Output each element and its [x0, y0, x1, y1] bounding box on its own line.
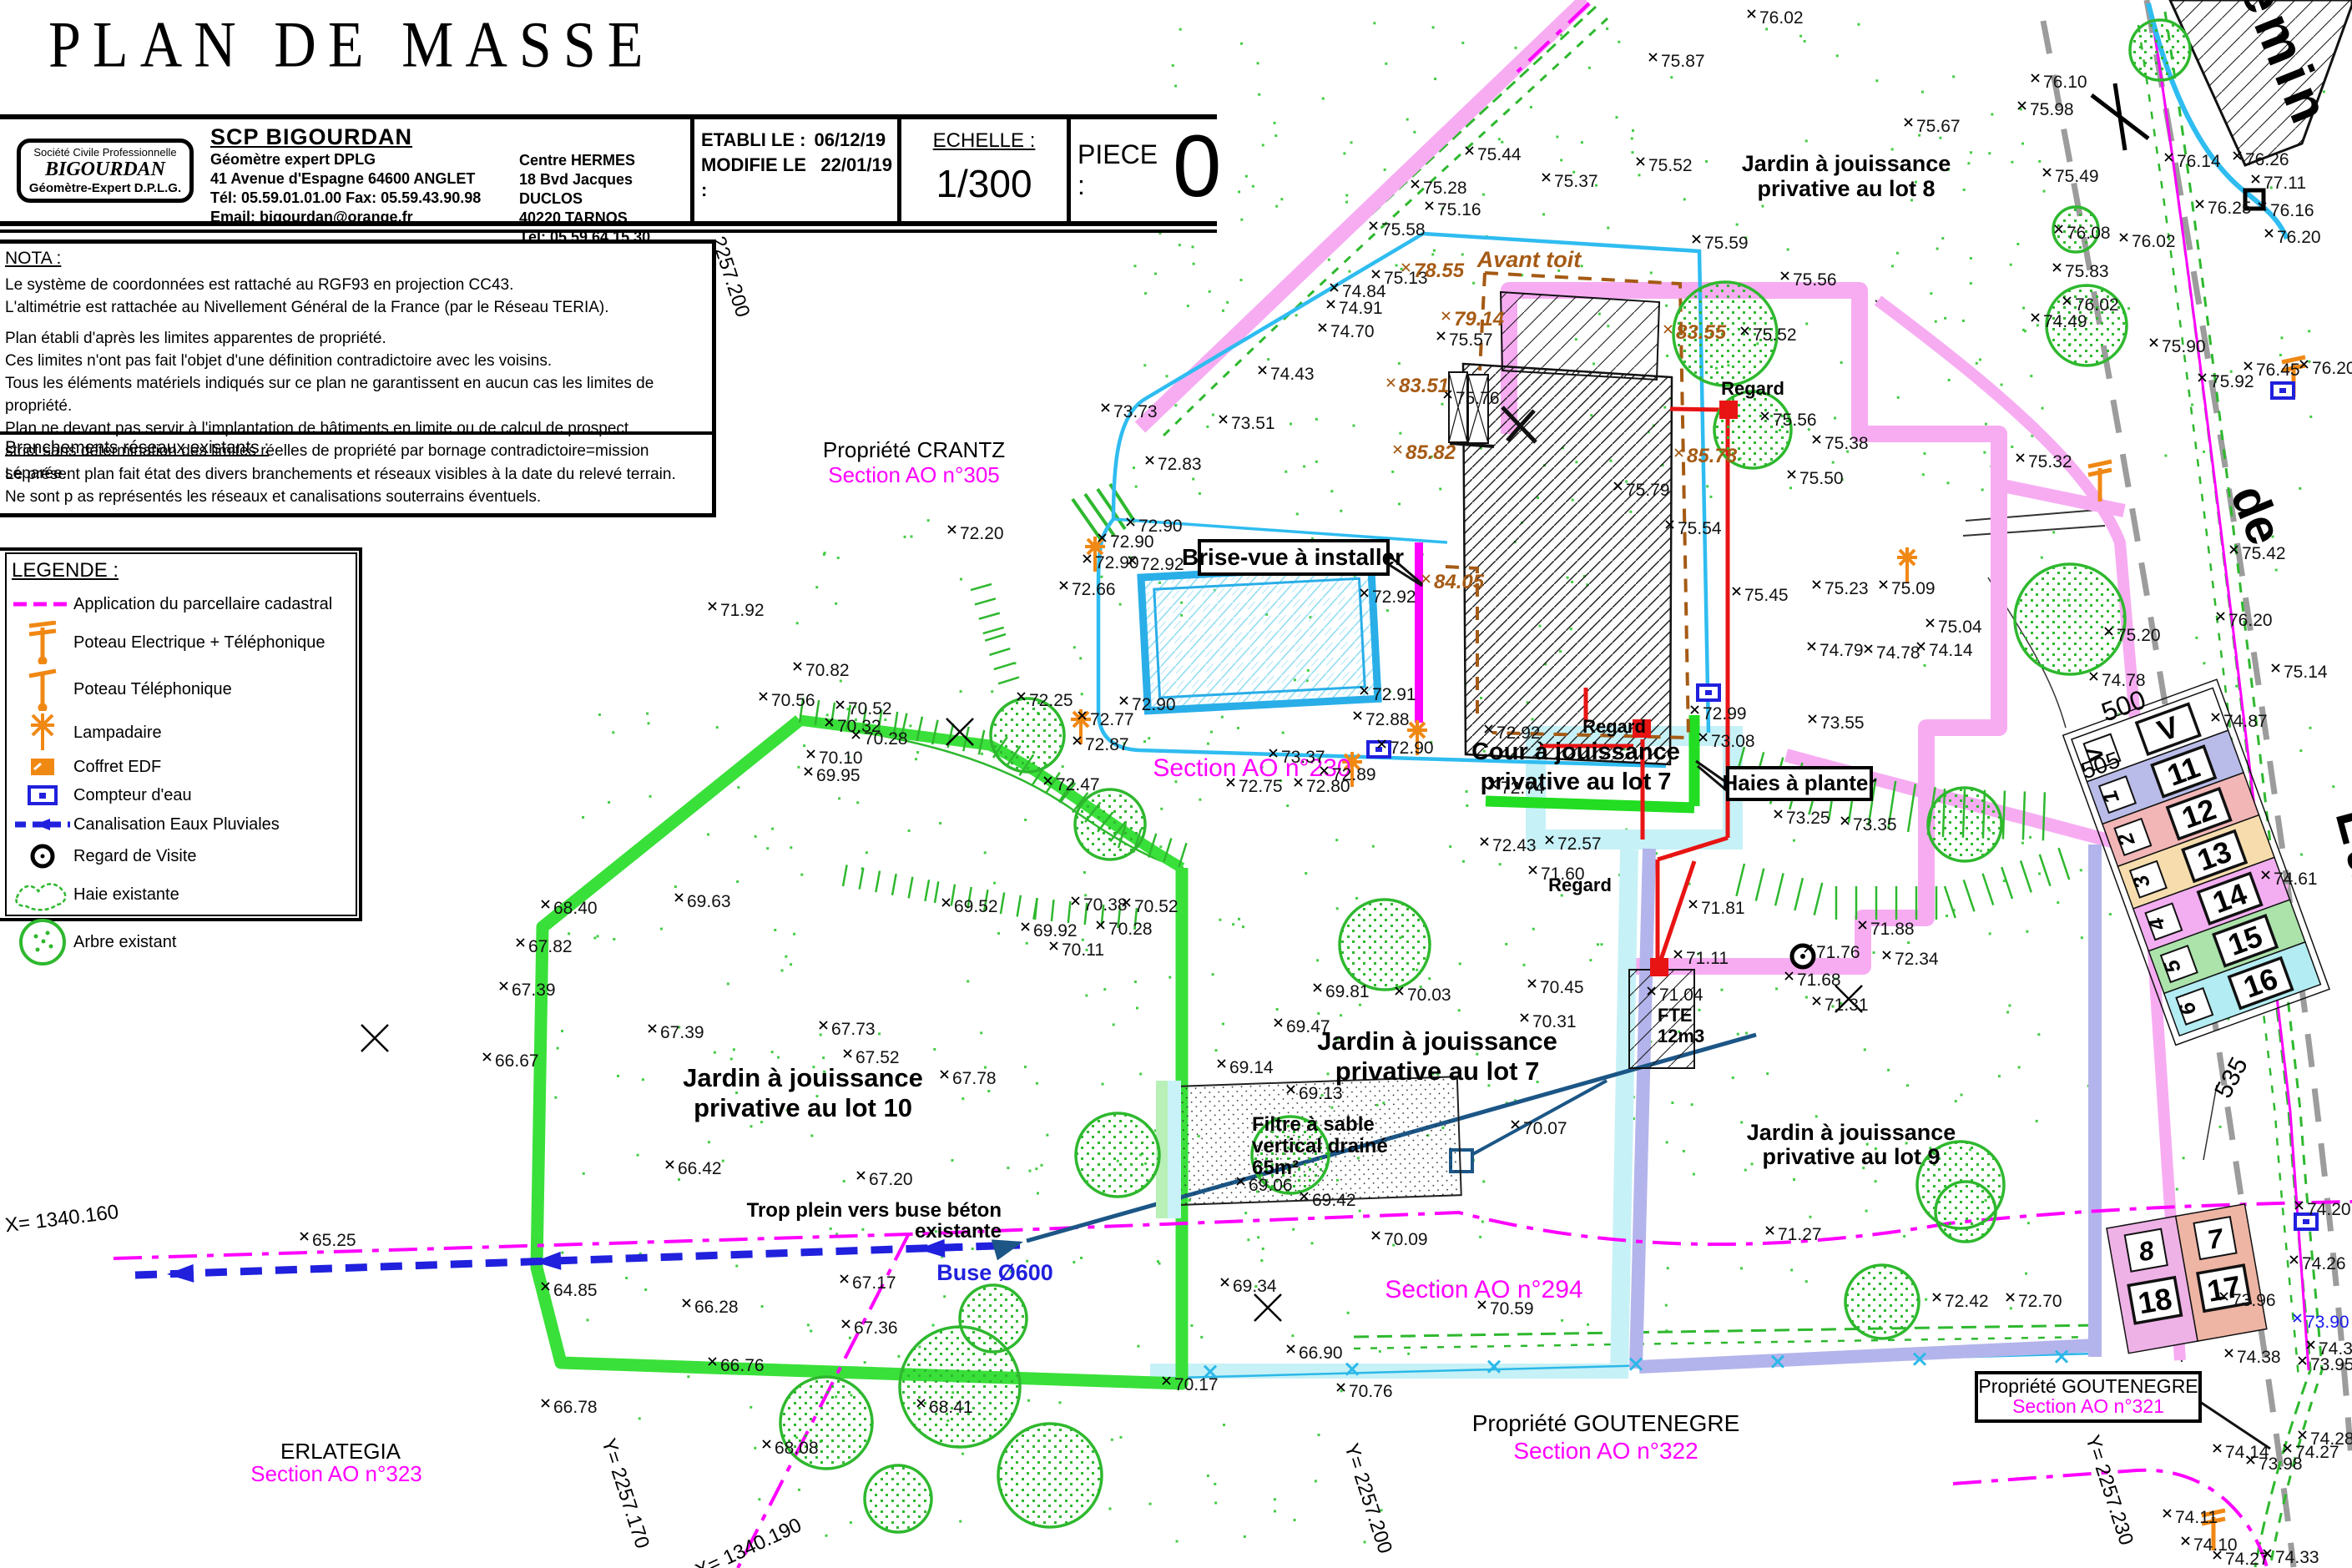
grass-dot: [1922, 473, 1925, 476]
legend-label: Canalisation Eaux Pluviales: [73, 815, 280, 834]
grass-dot: [1226, 301, 1229, 304]
grass-dot: [915, 758, 917, 760]
grass-dot: [1148, 737, 1150, 739]
cadastral-line-icon: [12, 600, 73, 608]
grass-dot: [908, 829, 911, 832]
spot-elevation: 72.43: [1481, 836, 1537, 855]
svg-text:70.07: 70.07: [1523, 1119, 1567, 1138]
spot-elevation: 75.52: [1637, 156, 1693, 175]
grass-dot: [1335, 839, 1338, 841]
grass-dot: [1080, 1257, 1083, 1259]
grass-dot: [1530, 106, 1532, 108]
grass-dot: [909, 724, 911, 727]
grass-dot: [1601, 943, 1603, 945]
grass-dot: [1168, 976, 1171, 979]
grass-dot: [1340, 1014, 1342, 1016]
grass-dot: [678, 1178, 680, 1181]
grass-dot: [1398, 362, 1401, 365]
svg-text:70.03: 70.03: [1407, 986, 1451, 1005]
grass-dot: [613, 938, 615, 940]
grass-dot: [1720, 989, 1723, 991]
svg-text:76.02: 76.02: [2132, 232, 2176, 251]
grass-dot: [781, 970, 784, 972]
grass-dot: [1295, 314, 1298, 316]
grass-dot: [1709, 496, 1712, 498]
legend-heading: LEGENDE :: [12, 559, 359, 582]
grass-dot: [1671, 1102, 1673, 1104]
grass-dot: [1274, 134, 1277, 137]
svg-text:74.27: 74.27: [2225, 1550, 2269, 1568]
svg-text:74.61: 74.61: [2274, 870, 2318, 889]
grass-dot: [1744, 1169, 1747, 1172]
svg-text:75.87: 75.87: [1661, 52, 1705, 71]
grass-dot: [1921, 91, 1924, 93]
grass-dot: [1449, 845, 1451, 848]
map-label: Filtre à sable: [1252, 1113, 1375, 1136]
grass-dot: [625, 1277, 628, 1279]
grass-dot: [2300, 854, 2303, 856]
svg-text:70.52: 70.52: [848, 699, 892, 718]
grass-dot: [790, 963, 792, 966]
poteau-elec-tel-icon: [12, 621, 73, 664]
grass-dot: [1799, 35, 1802, 38]
svg-text:71.76: 71.76: [1816, 943, 1860, 962]
grass-dot: [2109, 913, 2112, 915]
grass-dot: [1944, 317, 1946, 320]
stall-number: 18: [2136, 1281, 2175, 1320]
svg-text:69.95: 69.95: [816, 766, 861, 785]
grass-dot: [2006, 1011, 2009, 1013]
grass-dot: [1805, 322, 1808, 325]
grass-dot: [810, 1329, 812, 1332]
nota-box: NOTA : Le système de coordonnées est rat…: [0, 239, 716, 517]
grass-dot: [1244, 1212, 1247, 1214]
grass-dot: [582, 816, 584, 819]
grass-dot: [1073, 646, 1076, 648]
grass-dot: [1638, 174, 1640, 176]
piece-label: PIECE :: [1078, 139, 1158, 201]
svg-text:70.09: 70.09: [1384, 1230, 1428, 1249]
spot-elevation: 75.44: [1466, 145, 1522, 164]
svg-text:74.43: 74.43: [1270, 365, 1315, 384]
compteur-eau-icon: [12, 785, 73, 805]
grass-dot: [1137, 1345, 1139, 1348]
grass-dot: [1981, 488, 1984, 491]
svg-text:72.91: 72.91: [1372, 685, 1416, 704]
firm-name: SCP BIGOURDAN: [210, 124, 519, 150]
legend-label: Haie existante: [73, 885, 179, 905]
grass-dot: [561, 1252, 563, 1254]
grass-dot: [1135, 486, 1138, 488]
svg-text:75.28: 75.28: [1423, 179, 1467, 198]
grass-dot: [1740, 1267, 1743, 1269]
grass-dot: [807, 1323, 810, 1326]
compteur-eau-icon: [1698, 685, 1719, 700]
grass-dot: [1665, 305, 1668, 307]
nota-line: L'altimétrie est rattachée au Nivellemen…: [5, 296, 705, 319]
grass-dot: [1373, 22, 1375, 24]
grass-dot: [2299, 749, 2302, 752]
grass-dot: [961, 1097, 964, 1100]
spot-elevation: 66.28: [683, 1298, 739, 1317]
legend-label: Arbre existant: [73, 933, 176, 952]
firm-email: Email: bigourdan@orange.fr: [210, 208, 519, 227]
grass-dot: [1274, 122, 1276, 124]
grass-dot: [815, 586, 818, 588]
grass-dot: [727, 983, 729, 986]
grass-dot: [1317, 1012, 1320, 1015]
grass-dot: [1166, 375, 1168, 377]
firm-subtitle: Géomètre expert DPLG: [210, 150, 519, 169]
grass-dot: [810, 1135, 813, 1137]
grass-dot: [771, 828, 774, 830]
grass-dot: [1462, 860, 1465, 863]
grass-dot: [1499, 863, 1502, 865]
svg-text:73.51: 73.51: [1231, 414, 1275, 433]
svg-text:79.14: 79.14: [1454, 308, 1504, 330]
grass-dot: [1935, 320, 1937, 323]
svg-text:72.90: 72.90: [1095, 553, 1139, 572]
grass-dot: [1316, 959, 1319, 961]
grass-dot: [2029, 836, 2032, 839]
grass-dot: [766, 847, 769, 850]
spot-elevation: 69.52: [942, 897, 998, 916]
grass-dot: [1240, 219, 1243, 221]
piece-box: PIECE : 0: [1067, 119, 1217, 221]
grass-dot: [1970, 257, 1972, 260]
svg-text:69.92: 69.92: [1033, 921, 1078, 940]
grass-dot: [1433, 250, 1436, 252]
grass-dot: [793, 933, 795, 935]
svg-text:75.67: 75.67: [1916, 117, 1961, 136]
spot-elevation: 75.58: [1370, 220, 1426, 239]
grass-dot: [1103, 988, 1106, 991]
grass-dot: [1998, 1075, 2001, 1077]
grass-dot: [1396, 265, 1398, 267]
spot-elevation: 70.76: [1337, 1382, 1393, 1401]
grass-dot: [1607, 227, 1609, 229]
title-block: Société Civile Professionnelle BIGOURDAN…: [0, 114, 1217, 226]
grass-dot: [2011, 446, 2013, 448]
map-label: Y= 2257.170: [597, 1435, 654, 1550]
spot-elevation: 74.26: [2290, 1254, 2346, 1273]
svg-text:65.25: 65.25: [312, 1231, 356, 1250]
grass-dot: [1327, 1072, 1330, 1075]
grass-dot: [1085, 995, 1088, 997]
spot-elevation: 70.56: [760, 691, 815, 710]
office-line2: 18 Bvd Jacques DUCLOS: [519, 170, 690, 209]
grass-dot: [1028, 1170, 1031, 1172]
svg-text:70.17: 70.17: [1174, 1375, 1219, 1394]
legend-label: Lampadaire: [73, 723, 162, 743]
grass-dot: [1210, 731, 1213, 734]
map-label: Regard: [1721, 378, 1784, 399]
spot-elevation: 66.67: [483, 1051, 539, 1071]
grass-dot: [1962, 320, 1965, 322]
svg-text:73.90: 73.90: [2305, 1313, 2349, 1332]
grass-dot: [1650, 271, 1653, 274]
map-label: Section AO n°322: [1513, 1438, 1698, 1464]
grass-dot: [2041, 557, 2043, 559]
office-info: Centre HERMES 18 Bvd Jacques DUCLOS 4022…: [519, 119, 690, 221]
grass-dot: [1561, 1319, 1563, 1322]
grass-dot: [1428, 977, 1431, 980]
svg-text:71.92: 71.92: [720, 601, 765, 620]
grass-dot: [1963, 189, 1966, 191]
grass-dot: [1355, 897, 1358, 900]
svg-text:74.11: 74.11: [2175, 1508, 2218, 1527]
spot-elevation: 70.38: [1072, 895, 1128, 915]
svg-text:72.43: 72.43: [1492, 836, 1537, 855]
svg-text:72.90: 72.90: [1110, 532, 1154, 552]
svg-text:73.08: 73.08: [1711, 732, 1755, 751]
svg-text:83.51: 83.51: [1399, 375, 1449, 397]
grass-dot: [1199, 799, 1201, 801]
map-label: Section AO n°321: [2012, 1395, 2164, 1417]
grass-dot: [1257, 1236, 1259, 1238]
grass-dot: [612, 731, 614, 734]
grass-dot: [1631, 151, 1633, 154]
grass-dot: [1081, 693, 1083, 695]
tree: [2015, 564, 2125, 674]
spot-elevation: 67.39: [500, 981, 556, 1000]
svg-text:75.54: 75.54: [1678, 519, 1722, 538]
svg-text:75.50: 75.50: [1799, 469, 1844, 488]
firm-phones: Tél: 05.59.01.01.00 Fax: 05.59.43.90.98: [210, 189, 519, 208]
grass-dot: [1925, 1298, 1927, 1301]
svg-text:67.73: 67.73: [831, 1020, 876, 1039]
grass-dot: [1238, 918, 1240, 920]
grass-dot: [1294, 1519, 1296, 1521]
svg-text:75.14: 75.14: [2284, 663, 2328, 682]
legend-label: Poteau Téléphonique: [73, 680, 232, 699]
grass-dot: [933, 1048, 936, 1051]
grass-dot: [1239, 279, 1242, 281]
talus-comb: [971, 584, 1019, 683]
grass-dot: [1242, 925, 1244, 928]
grass-dot: [1347, 1312, 1350, 1314]
grass-dot: [1238, 190, 1240, 193]
grass-dot: [1693, 1173, 1695, 1176]
svg-text:70.76: 70.76: [1349, 1382, 1393, 1401]
grass-dot: [1111, 1439, 1113, 1441]
grass-dot: [1143, 364, 1146, 366]
spot-elevation: 75.50: [1788, 469, 1844, 488]
legend-label: Coffret EDF: [73, 758, 161, 777]
map-label: Propriété GOUTENEGRE: [1472, 1410, 1740, 1436]
svg-text:69.63: 69.63: [687, 892, 731, 911]
svg-text:66.90: 66.90: [1299, 1344, 1343, 1363]
grass-dot: [1385, 63, 1387, 65]
scale-label: ECHELLE :: [901, 129, 1067, 153]
grass-dot: [1352, 425, 1355, 427]
svg-text:76.45: 76.45: [2256, 360, 2300, 380]
grass-dot: [777, 1056, 780, 1059]
grass-dot: [1176, 1540, 1179, 1543]
svg-text:69.81: 69.81: [1325, 982, 1370, 1001]
legend-label: Compteur d'eau: [73, 786, 192, 805]
grass-dot: [1274, 1498, 1276, 1500]
grass-dot: [997, 932, 1000, 935]
compteur-eau-icon: [1368, 742, 1390, 757]
map-label: Jardin à jouissance: [1747, 1120, 1956, 1145]
svg-text:71.27: 71.27: [1778, 1225, 1822, 1244]
svg-text:75.09: 75.09: [1891, 579, 1936, 598]
grass-dot: [1282, 732, 1285, 734]
grass-dot: [1296, 512, 1299, 515]
grass-dot: [820, 1033, 822, 1036]
spot-elevation: 67.39: [649, 1023, 704, 1042]
svg-text:73.98: 73.98: [2259, 1455, 2303, 1474]
grass-dot: [1244, 1535, 1246, 1538]
spot-elevation: 76.25: [2196, 199, 2252, 218]
grass-dot: [1955, 1100, 1957, 1102]
swimming-pool: [1141, 566, 1378, 711]
grass-dot: [797, 766, 800, 769]
grass-dot: [1683, 198, 1686, 200]
nota-line: Ces limites n'ont pas fait l'objet d'une…: [5, 350, 705, 372]
spot-elevation: 75.38: [1813, 434, 1869, 453]
grass-dot: [1836, 54, 1839, 57]
nota-line: Plan établi d'après les limites apparent…: [5, 327, 705, 350]
grass-dot: [961, 1453, 964, 1455]
grass-dot: [1498, 138, 1501, 140]
grass-dot: [2052, 531, 2055, 533]
grass-dot: [1340, 1389, 1343, 1392]
svg-text:69.34: 69.34: [1233, 1277, 1277, 1296]
svg-text:76.08: 76.08: [2067, 224, 2111, 243]
grass-dot: [1315, 461, 1318, 463]
grass-dot: [2235, 685, 2238, 688]
grass-dot: [1459, 962, 1461, 965]
grass-dot: [617, 1075, 619, 1077]
svg-text:72.74: 72.74: [1501, 779, 1545, 798]
grass-dot: [1119, 1436, 1122, 1439]
spot-elevation: 69.95: [805, 766, 861, 785]
spot-elevation: 73.25: [1774, 809, 1830, 828]
parking-stalls: VV111212313414515616818717: [2063, 679, 2329, 1354]
map-label: Regard: [1582, 716, 1646, 737]
grass-dot: [674, 885, 677, 888]
grass-dot: [1190, 1324, 1193, 1327]
grass-dot: [927, 519, 930, 522]
grass-dot: [638, 1417, 641, 1419]
grass-dot: [1897, 396, 1900, 399]
spot-elevation: 71.92: [709, 601, 765, 620]
grass-dot: [1875, 79, 1878, 82]
grass-dot: [2016, 243, 2019, 245]
grass-dot: [1766, 1072, 1769, 1075]
talus-hatching: [800, 584, 2069, 930]
svg-text:72.57: 72.57: [1557, 834, 1602, 854]
spot-elevation: 75.49: [2043, 167, 2099, 186]
nota-line: Tous les éléments matériels indiqués sur…: [5, 372, 705, 417]
grass-dot: [1345, 194, 1348, 197]
grass-dot: [830, 1228, 832, 1230]
spot-elevation: 67.78: [941, 1069, 997, 1088]
regard-rouge: [1650, 958, 1668, 976]
legend-label: Poteau Electrique + Téléphonique: [73, 633, 326, 653]
grass-dot: [1199, 492, 1201, 495]
svg-text:75.56: 75.56: [1773, 411, 1817, 430]
regard-rouge: [1719, 401, 1738, 419]
grass-dot: [1698, 1009, 1701, 1011]
spot-elevation: 72.66: [1060, 580, 1116, 599]
svg-text:74.87: 74.87: [2223, 712, 2268, 731]
grass-dot: [1172, 64, 1174, 67]
grass-dot: [1939, 137, 1941, 139]
grass-dot: [1221, 716, 1224, 718]
svg-text:75.32: 75.32: [2028, 452, 2072, 471]
grass-dot: [1804, 40, 1806, 43]
svg-text:85.82: 85.82: [1406, 441, 1456, 464]
grass-dot: [1691, 1103, 1693, 1106]
svg-text:66.42: 66.42: [678, 1159, 722, 1178]
svg-text:70.38: 70.38: [1083, 895, 1128, 915]
grass-dot: [1285, 471, 1287, 473]
etabli-date: 06/12/19: [814, 128, 886, 153]
spot-elevation: 74.78: [1865, 643, 1920, 663]
grass-dot: [1961, 1093, 1963, 1096]
svg-text:69.52: 69.52: [954, 897, 998, 916]
grass-dot: [1240, 43, 1243, 45]
grass-dot: [1896, 252, 1899, 255]
svg-text:72.70: 72.70: [2018, 1292, 2062, 1311]
grass-dot: [960, 578, 962, 581]
grass-dot: [2042, 407, 2044, 410]
spot-elevation: 69.14: [1218, 1058, 1274, 1077]
map-label: Buse Ø600: [936, 1260, 1053, 1285]
svg-text:74.26: 74.26: [2302, 1254, 2346, 1273]
spot-elevation: 75.37: [1542, 172, 1598, 191]
svg-text:72.20: 72.20: [960, 524, 1004, 543]
spot-elevation: 69.34: [1221, 1277, 1277, 1296]
grass-dot: [1407, 1353, 1410, 1355]
map-label: X= 1340.190: [692, 1514, 805, 1568]
etabli-label: ETABLI LE :: [701, 128, 805, 153]
grass-dot: [1737, 1033, 1739, 1036]
spot-elevation: 75.54: [1666, 519, 1722, 538]
grass-dot: [1267, 358, 1269, 360]
modifie-date: 22/01/19: [820, 153, 892, 203]
svg-text:72.83: 72.83: [1158, 455, 1202, 474]
grass-dot: [2027, 1222, 2030, 1224]
svg-text:67.39: 67.39: [660, 1023, 704, 1042]
svg-text:70.52: 70.52: [1134, 897, 1179, 916]
svg-text:76.16: 76.16: [2270, 201, 2314, 220]
grass-dot: [1245, 175, 1248, 178]
svg-text:73.35: 73.35: [1853, 815, 1897, 834]
grass-dot: [1207, 743, 1209, 745]
spot-elevation: 74.11: [2163, 1508, 2218, 1527]
tree: [1928, 788, 2001, 861]
svg-text:76.10: 76.10: [2043, 73, 2087, 92]
grass-dot: [2011, 161, 2013, 164]
grass-dot: [1252, 185, 1254, 188]
grass-dot: [1275, 205, 1278, 208]
spot-elevation: 76.20: [2217, 611, 2273, 630]
spot-elevation: 70.09: [1372, 1230, 1428, 1249]
grass-dot: [736, 880, 739, 883]
grass-dot: [1597, 943, 1599, 945]
grass-dot: [2043, 190, 2046, 193]
grass-dot: [993, 882, 996, 885]
grass-dot: [1588, 67, 1591, 69]
grass-dot: [1805, 1280, 1808, 1283]
grass-dot: [1542, 213, 1545, 215]
svg-text:69.06: 69.06: [1249, 1176, 1293, 1195]
grass-dot: [2036, 1120, 2038, 1122]
